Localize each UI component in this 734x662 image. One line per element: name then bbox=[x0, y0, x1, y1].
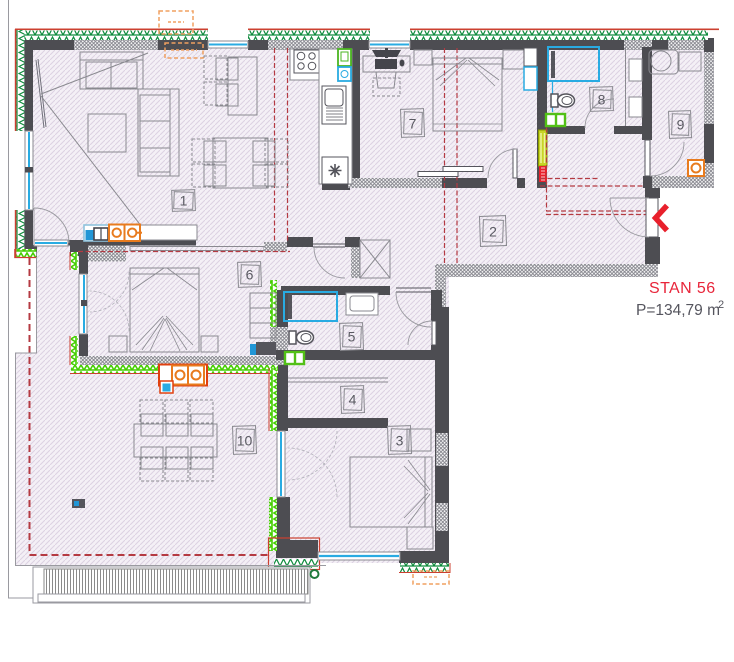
svg-text:3: 3 bbox=[396, 433, 404, 449]
svg-text:10: 10 bbox=[237, 433, 253, 449]
svg-text:2: 2 bbox=[718, 299, 724, 311]
svg-text:STAN 56: STAN 56 bbox=[649, 280, 716, 297]
svg-text:P=134,79 m: P=134,79 m bbox=[636, 302, 720, 319]
svg-text:8: 8 bbox=[598, 92, 606, 108]
svg-text:6: 6 bbox=[246, 267, 254, 283]
svg-text:4: 4 bbox=[349, 392, 357, 408]
svg-text:5: 5 bbox=[348, 329, 356, 345]
svg-text:2: 2 bbox=[489, 224, 497, 240]
svg-text:1: 1 bbox=[180, 193, 188, 209]
svg-text:7: 7 bbox=[409, 116, 417, 132]
svg-text:9: 9 bbox=[677, 117, 685, 133]
